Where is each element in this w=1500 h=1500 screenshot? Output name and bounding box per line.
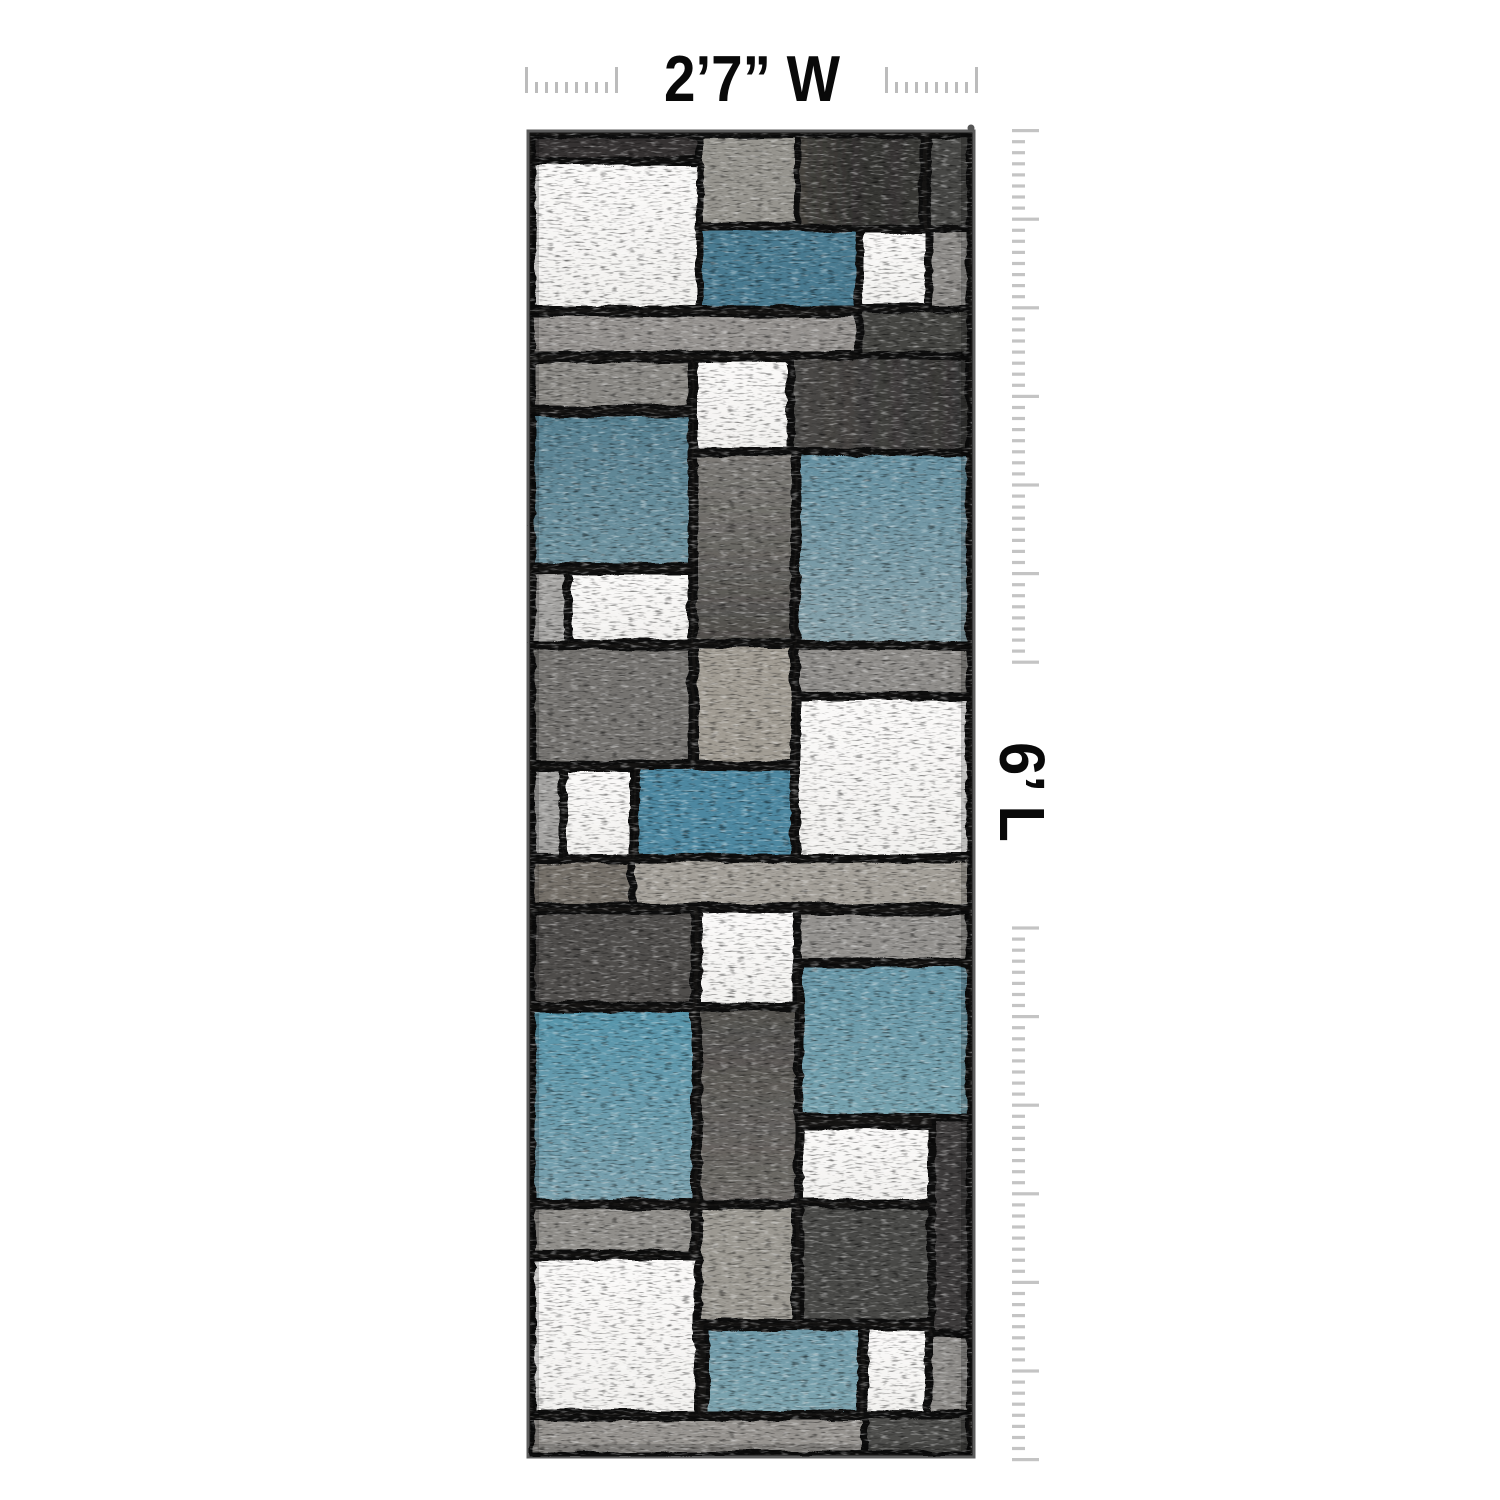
svg-text:2’7” W: 2’7” W — [664, 42, 841, 115]
svg-text:6’ L: 6’ L — [986, 742, 1058, 842]
